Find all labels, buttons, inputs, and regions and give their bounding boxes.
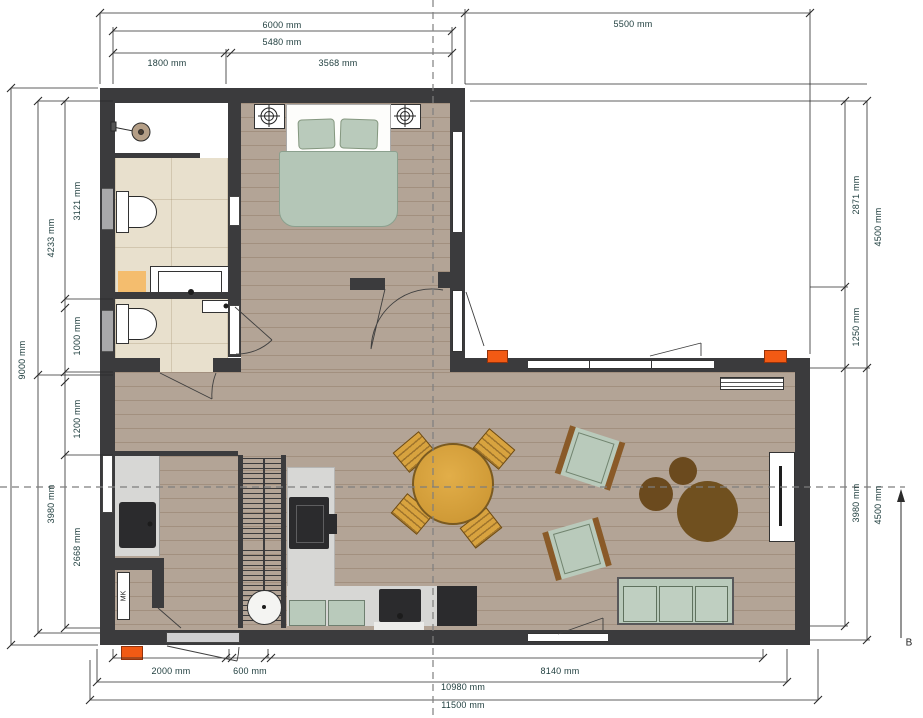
kitchen-cabinet-front-2 <box>328 600 365 626</box>
wall-wc-living-a <box>115 358 160 372</box>
wall-mk-right <box>152 558 164 608</box>
wall-hall-block <box>438 272 465 288</box>
dim-left-9000: 9000 mm <box>17 341 27 380</box>
tv-cabinet <box>769 452 795 542</box>
dim-top-3568: 3568 mm <box>319 58 358 68</box>
toilet-cistern <box>116 191 129 233</box>
sofa <box>617 577 734 625</box>
wardrobe-hanging-section-1 <box>243 458 281 543</box>
vanity-basin <box>158 271 222 293</box>
dim-right-4500-lower: 4500 mm <box>873 486 883 525</box>
meter-cabinet-label: MK <box>120 591 127 602</box>
dim-right-4500-upper: 4500 mm <box>873 208 883 247</box>
radiator <box>720 377 784 390</box>
shower-floor <box>115 103 228 158</box>
wall-hall <box>350 278 385 290</box>
dim-bottom-600: 600 mm <box>233 666 267 676</box>
door-bathroom-panel <box>229 196 240 226</box>
door-patio <box>528 633 608 642</box>
dim-left-3121: 3121 mm <box>72 182 82 221</box>
vent-marker-2 <box>764 350 787 363</box>
section-arrow-b-head <box>897 489 905 502</box>
kitchen-sink <box>379 589 421 622</box>
section-marker-b: B <box>906 638 913 649</box>
shower-screen <box>115 153 200 158</box>
sofa-cushion <box>659 586 693 622</box>
dim-left-1000: 1000 mm <box>72 317 82 356</box>
nightstand-left <box>254 104 285 129</box>
wardrobe-rail-left <box>238 455 243 628</box>
window-bathroom-1 <box>102 188 113 230</box>
dim-top-6000: 6000 mm <box>263 20 302 30</box>
rug-circle-large <box>677 481 738 542</box>
dim-right-1250: 1250 mm <box>851 308 861 347</box>
wall-left <box>100 88 115 645</box>
window-bedroom <box>452 132 463 232</box>
door-swing-terrace <box>650 343 701 356</box>
vent-marker-1 <box>487 350 508 363</box>
dim-right-2871: 2871 mm <box>851 176 861 215</box>
wall-right-living <box>795 358 810 645</box>
door-bedroom-exterior <box>452 290 463 352</box>
dim-bottom-2000: 2000 mm <box>152 666 191 676</box>
washing-machine <box>247 590 282 625</box>
tv-screen <box>779 466 782 526</box>
dishwasher-front <box>374 622 424 630</box>
vent-marker-3 <box>121 646 143 660</box>
bed-pillow-right <box>339 118 378 149</box>
nightstand-right <box>390 104 421 129</box>
wall-top-wing <box>100 88 465 103</box>
door-swing-front <box>167 646 239 661</box>
door-wc-panel <box>229 305 240 355</box>
bed-duvet <box>279 151 398 227</box>
window-utility <box>102 455 113 513</box>
kitchen-cabinet-front-1 <box>289 600 326 626</box>
fridge <box>437 586 477 626</box>
wall-wc-living-b <box>213 358 241 372</box>
dim-top-1800: 1800 mm <box>148 58 187 68</box>
dim-bottom-10980: 10980 mm <box>441 682 485 692</box>
wc-cistern <box>116 304 129 344</box>
dim-left-4233: 4233 mm <box>46 219 56 258</box>
window-bathroom-2 <box>102 310 113 352</box>
dim-right-3980: 3980 mm <box>851 484 861 523</box>
bed-pillow-left <box>297 118 335 149</box>
range-handle <box>329 514 337 534</box>
window-living-top <box>528 360 714 369</box>
rug-circle-small <box>669 457 697 485</box>
dim-left-3980: 3980 mm <box>46 485 56 524</box>
wall-bathroom-wc <box>115 292 228 299</box>
sofa-cushion <box>695 586 728 622</box>
wall-mk-top <box>115 558 155 570</box>
dim-left-2668: 2668 mm <box>72 528 82 567</box>
rug-circle-medium <box>639 477 673 511</box>
wardrobe-rail-right <box>281 455 286 628</box>
dim-bottom-8140: 8140 mm <box>541 666 580 676</box>
utility-sink <box>119 502 156 548</box>
range-inner <box>296 505 324 543</box>
sofa-cushion <box>623 586 657 622</box>
wall-utility-divider <box>115 451 238 456</box>
dim-left-1200: 1200 mm <box>72 400 82 439</box>
bath-mat <box>118 271 146 293</box>
floor-plan: MK <box>0 0 923 718</box>
dim-top-5500: 5500 mm <box>614 19 653 29</box>
dim-bottom-11500: 11500 mm <box>441 700 484 710</box>
door-swing-bedroom-exterior <box>466 292 484 346</box>
door-front-panel <box>166 632 240 643</box>
meter-cabinet-plate: MK <box>117 572 130 620</box>
dim-top-5480: 5480 mm <box>263 37 302 47</box>
dining-table <box>412 443 494 525</box>
